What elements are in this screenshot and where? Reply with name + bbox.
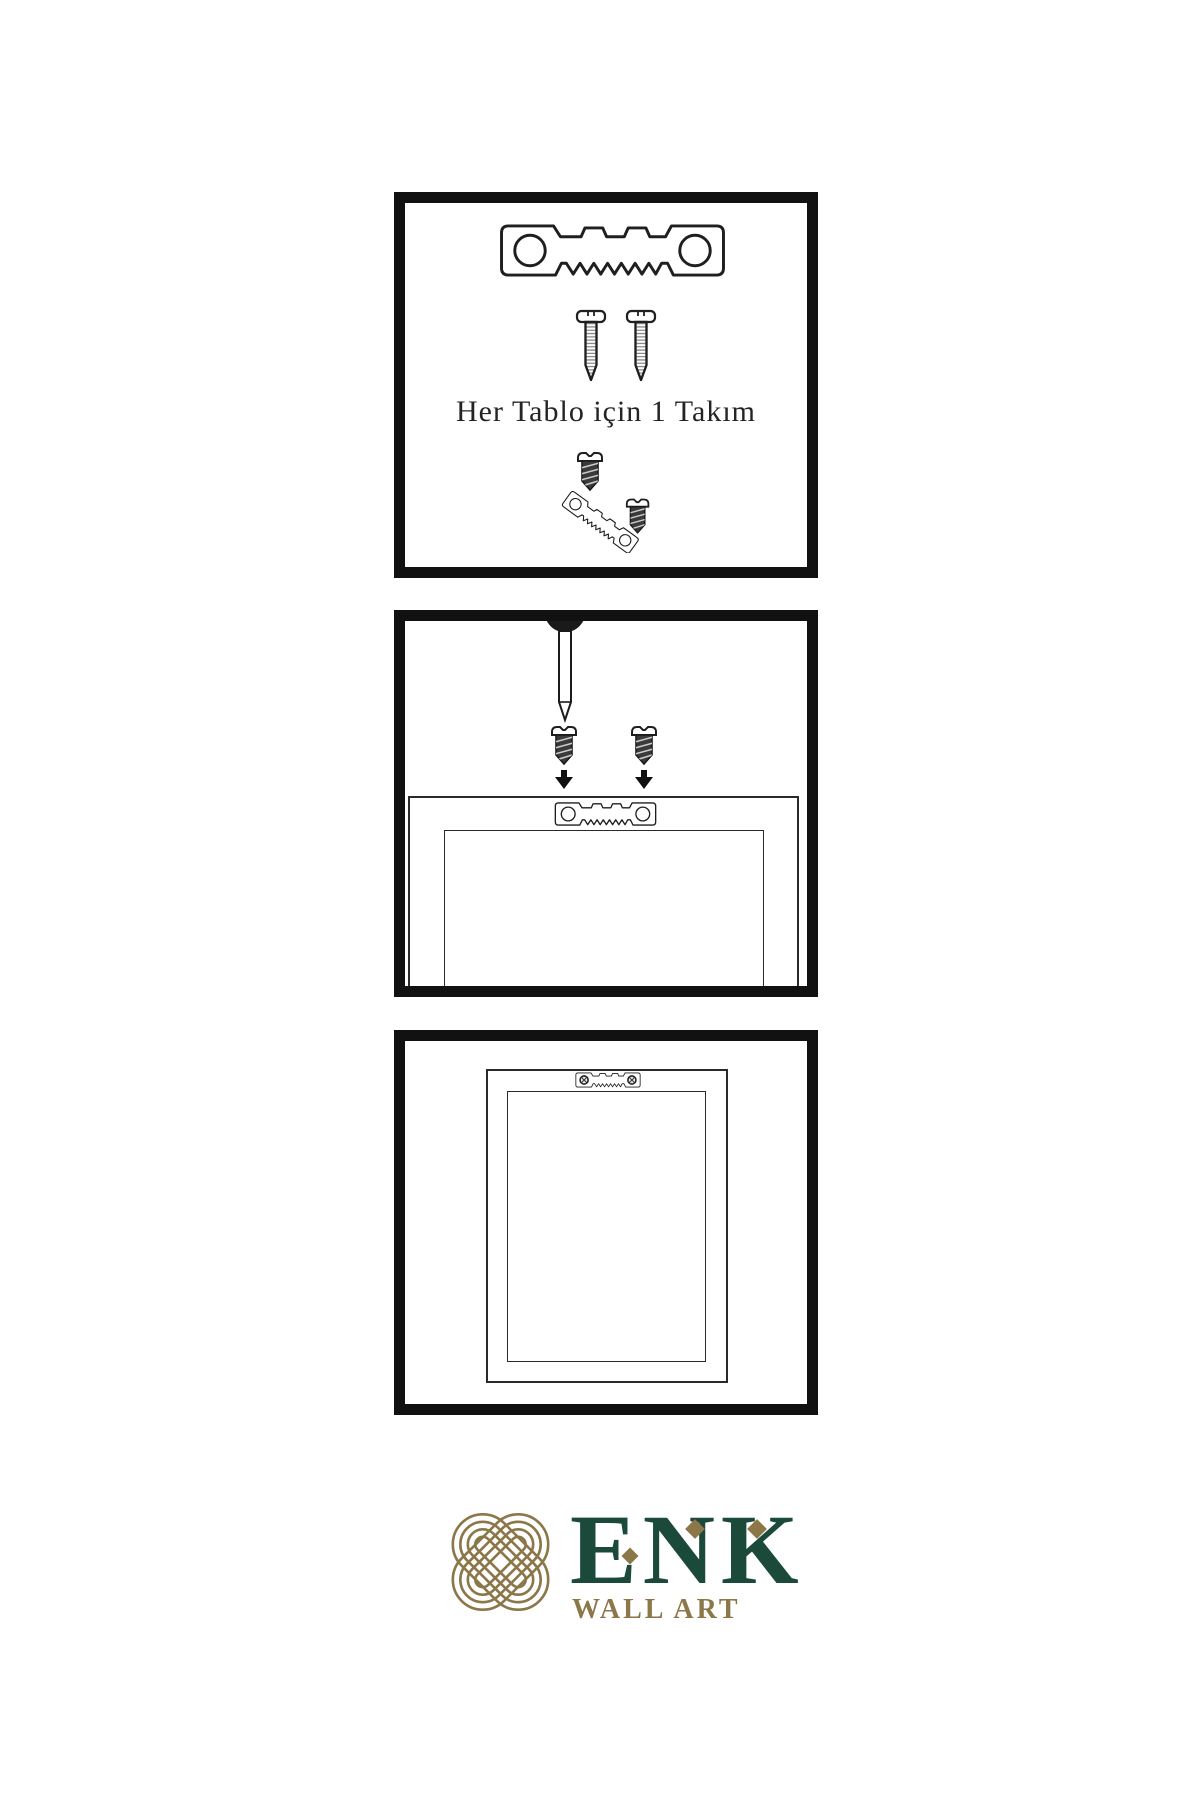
screw-into-hanger-icon	[560, 445, 664, 553]
frame-back-inner-edge	[507, 1091, 706, 1362]
screw-icon	[575, 307, 607, 381]
step-panel-attach-hanger	[394, 610, 818, 997]
dark-screw-icon	[550, 722, 578, 766]
frame-back-inner-edge	[444, 830, 764, 997]
interlaced-knot-icon	[438, 1497, 563, 1627]
kit-caption: Her Tablo için 1 Takım	[405, 395, 807, 429]
sawtooth-hanger-icon	[554, 801, 657, 827]
down-arrow-icon	[554, 770, 574, 789]
instruction-sheet: Her Tablo için 1 Takım	[0, 0, 1200, 1800]
sawtooth-hanger-icon	[497, 223, 728, 278]
screw-icon	[625, 307, 657, 381]
dark-screw-icon	[630, 722, 658, 766]
brand-name: ENK	[570, 1500, 805, 1600]
mounted-hanger-with-screws-icon	[575, 1072, 641, 1088]
down-arrow-icon	[634, 770, 654, 789]
wall-nail-icon	[543, 618, 587, 724]
step-panel-hardware-kit: Her Tablo için 1 Takım	[394, 192, 818, 578]
step-panel-hang-frame	[394, 1030, 818, 1415]
brand-tagline: WALL ART	[572, 1596, 741, 1624]
